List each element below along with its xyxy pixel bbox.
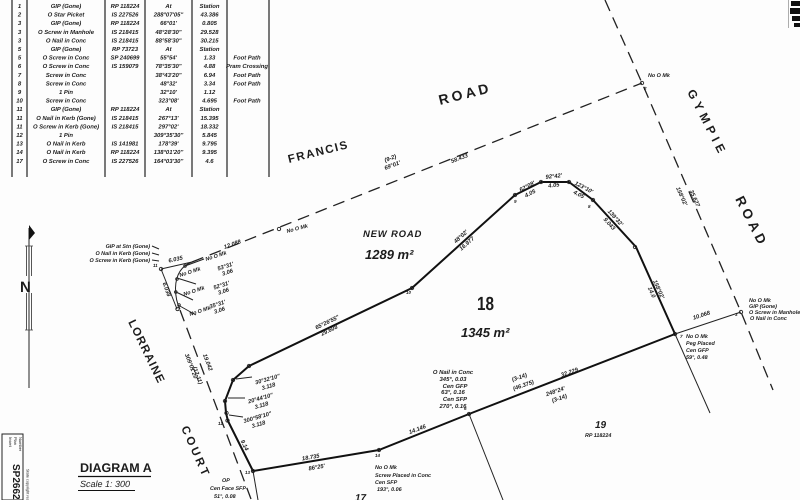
svg-text:IS 218415: IS 218415	[112, 37, 140, 44]
svg-text:Insert: Insert	[8, 437, 13, 448]
svg-text:30.215: 30.215	[200, 37, 219, 44]
svg-text:2: 2	[17, 12, 22, 19]
svg-text:51°, 0.08: 51°, 0.08	[214, 494, 236, 500]
svg-text:O Nail in Conc: O Nail in Conc	[750, 316, 787, 322]
svg-text:State copyright reserved: State copyright reserved	[26, 469, 30, 500]
svg-text:4.6: 4.6	[204, 158, 214, 165]
svg-text:267°13': 267°13'	[157, 115, 179, 122]
svg-text:Number: Number	[18, 437, 23, 452]
svg-text:IS 141981: IS 141981	[112, 141, 139, 148]
svg-text:138°01'20": 138°01'20"	[154, 149, 184, 156]
svg-text:38°43'20": 38°43'20"	[155, 72, 181, 79]
svg-text:Foot Path: Foot Path	[233, 72, 261, 79]
svg-text:9.795: 9.795	[202, 141, 217, 148]
svg-text:297°02': 297°02'	[157, 123, 179, 130]
svg-text:Foot Path: Foot Path	[233, 98, 261, 105]
svg-text:Station: Station	[200, 3, 220, 10]
svg-text:18.332: 18.332	[200, 123, 219, 130]
svg-text:Cen SFP: Cen SFP	[443, 396, 467, 403]
svg-text:GIP (Gone): GIP (Gone)	[51, 106, 82, 113]
svg-text:1345 m²: 1345 m²	[461, 325, 510, 340]
svg-text:Station: Station	[200, 106, 220, 113]
svg-text:O Nail in Kerb (Gone): O Nail in Kerb (Gone)	[36, 115, 96, 122]
svg-text:O Screw in Conc: O Screw in Conc	[43, 63, 91, 70]
svg-text:Peg Placed: Peg Placed	[686, 341, 715, 347]
svg-text:O Screw in Conc: O Screw in Conc	[43, 158, 91, 165]
svg-text:O Nail in Conc: O Nail in Conc	[433, 369, 474, 376]
svg-text:Pram Crossing: Pram Crossing	[226, 63, 268, 70]
svg-text:GIP (Gone): GIP (Gone)	[51, 46, 82, 53]
svg-text:Screw Placed in Conc: Screw Placed in Conc	[375, 473, 431, 479]
svg-text:O Nail in Kerb: O Nail in Kerb	[47, 149, 86, 156]
svg-text:1.33: 1.33	[204, 55, 216, 62]
svg-text:270°, 0.16: 270°, 0.16	[439, 403, 468, 410]
svg-text:78°35'30": 78°35'30"	[155, 63, 181, 70]
svg-text:288°07'05": 288°07'05"	[153, 12, 184, 19]
svg-text:14: 14	[16, 149, 23, 156]
svg-text:O Nail in Kerb: O Nail in Kerb	[47, 141, 86, 148]
svg-text:11: 11	[16, 106, 22, 113]
svg-text:4.05: 4.05	[547, 181, 561, 189]
svg-text:48°28'30": 48°28'30"	[154, 29, 181, 36]
svg-text:Cen Face SFP: Cen Face SFP	[210, 486, 246, 492]
svg-text:345°, 0.03: 345°, 0.03	[440, 376, 468, 383]
svg-text:SP 240699: SP 240699	[111, 55, 141, 62]
svg-text:17: 17	[355, 493, 367, 500]
svg-text:IS 227526: IS 227526	[112, 12, 140, 19]
svg-text:O Nail in Kerb (Gone): O Nail in Kerb (Gone)	[95, 251, 150, 257]
svg-text:Foot Path: Foot Path	[233, 55, 261, 62]
svg-text:GIP (Gone): GIP (Gone)	[51, 3, 82, 10]
svg-text:1: 1	[18, 3, 21, 10]
svg-text:193°, 0.06: 193°, 0.06	[377, 487, 403, 493]
svg-text:IS 218415: IS 218415	[112, 123, 140, 130]
svg-text:Foot Path: Foot Path	[233, 80, 261, 87]
svg-text:O Screw in Manhole: O Screw in Manhole	[38, 29, 95, 36]
svg-text:No O Mk: No O Mk	[648, 73, 671, 79]
svg-text:59°, 0.48: 59°, 0.48	[686, 355, 708, 361]
svg-text:RP 118224: RP 118224	[111, 20, 141, 27]
svg-text:4.695: 4.695	[201, 98, 217, 105]
svg-text:63°, 0.16: 63°, 0.16	[441, 389, 465, 396]
svg-text:1289 m²: 1289 m²	[365, 247, 414, 262]
svg-text:NEW ROAD: NEW ROAD	[363, 229, 422, 240]
svg-text:11: 11	[16, 123, 22, 130]
svg-text:IS 218415: IS 218415	[112, 115, 140, 122]
svg-text:IS 227526: IS 227526	[112, 158, 140, 165]
svg-text:O Screw in Kerb (Gone): O Screw in Kerb (Gone)	[33, 123, 99, 130]
svg-text:10: 10	[16, 98, 23, 105]
svg-text:RP 118224: RP 118224	[111, 149, 141, 156]
svg-text:323°08': 323°08'	[158, 98, 179, 105]
svg-text:O Star Picket: O Star Picket	[48, 12, 86, 19]
svg-text:OP: OP	[222, 478, 230, 484]
svg-text:32°10': 32°10'	[160, 89, 177, 96]
svg-text:Screw in Conc: Screw in Conc	[46, 72, 87, 79]
svg-text:SP2662: SP2662	[10, 464, 21, 500]
svg-text:11: 11	[16, 115, 22, 122]
svg-text:3.34: 3.34	[204, 80, 216, 87]
svg-text:N: N	[20, 279, 31, 296]
svg-text:12: 12	[218, 421, 224, 426]
svg-text:10: 10	[406, 290, 412, 295]
svg-text:1 Pin: 1 Pin	[59, 89, 73, 96]
svg-text:Screw in Conc: Screw in Conc	[46, 98, 87, 105]
svg-text:RP 118224: RP 118224	[111, 106, 141, 113]
svg-text:178°39': 178°39'	[158, 141, 179, 148]
svg-text:RP 118224: RP 118224	[111, 3, 141, 10]
svg-text:IS 218415: IS 218415	[112, 29, 140, 36]
svg-text:164°03'30": 164°03'30"	[154, 158, 184, 165]
svg-text:17: 17	[16, 158, 23, 165]
svg-text:At: At	[164, 106, 172, 113]
svg-text:No O Mk: No O Mk	[686, 334, 709, 340]
svg-text:GIP at Stn (Gone): GIP at Stn (Gone)	[106, 244, 151, 250]
svg-text:O Screw in Kerb (Gone): O Screw in Kerb (Gone)	[89, 258, 150, 264]
svg-text:88°58'30": 88°58'30"	[155, 37, 181, 44]
svg-text:66°01': 66°01'	[160, 20, 177, 27]
svg-text:Scale 1: 300: Scale 1: 300	[80, 479, 130, 489]
svg-text:Station: Station	[200, 46, 220, 53]
svg-text:18: 18	[477, 294, 494, 315]
svg-text:13: 13	[16, 141, 23, 148]
svg-text:No O Mk: No O Mk	[375, 465, 398, 471]
svg-text:4.88: 4.88	[203, 63, 216, 70]
svg-text:RP 118224: RP 118224	[585, 433, 611, 439]
svg-text:1 Pin: 1 Pin	[59, 132, 73, 139]
svg-text:Cen GFP: Cen GFP	[443, 383, 468, 390]
svg-text:6.94: 6.94	[204, 72, 216, 79]
svg-text:19: 19	[595, 420, 607, 431]
svg-text:0.805: 0.805	[202, 20, 217, 27]
svg-text:Cen SFP: Cen SFP	[375, 480, 398, 486]
svg-text:At: At	[164, 46, 172, 53]
svg-text:DIAGRAM A: DIAGRAM A	[80, 461, 152, 475]
svg-text:14: 14	[375, 453, 381, 458]
svg-text:O Screw in Conc: O Screw in Conc	[43, 55, 91, 62]
svg-text:13: 13	[245, 470, 251, 475]
svg-text:43.386: 43.386	[199, 12, 219, 19]
svg-text:O Nail in Conc: O Nail in Conc	[46, 37, 87, 44]
svg-text:15.395: 15.395	[200, 115, 219, 122]
svg-text:5.845: 5.845	[202, 132, 217, 139]
svg-text:48°32': 48°32'	[159, 80, 177, 87]
svg-text:GIP (Gone): GIP (Gone)	[51, 20, 82, 27]
svg-text:55°54': 55°54'	[160, 55, 177, 62]
svg-text:309°35'30": 309°35'30"	[154, 132, 184, 139]
svg-text:IS 159079: IS 159079	[112, 63, 140, 70]
svg-text:12: 12	[16, 132, 23, 139]
svg-text:Plan: Plan	[13, 437, 18, 445]
svg-text:Screw in Conc: Screw in Conc	[46, 80, 87, 87]
svg-text:29.528: 29.528	[199, 29, 219, 36]
svg-text:Cen GFP: Cen GFP	[686, 348, 709, 354]
svg-text:1.12: 1.12	[204, 89, 216, 96]
svg-text:RP 73723: RP 73723	[112, 46, 139, 53]
svg-text:At: At	[164, 3, 172, 10]
svg-text:11: 11	[153, 263, 158, 268]
svg-text:9.395: 9.395	[202, 149, 217, 156]
svg-text:2: 2	[643, 86, 647, 91]
